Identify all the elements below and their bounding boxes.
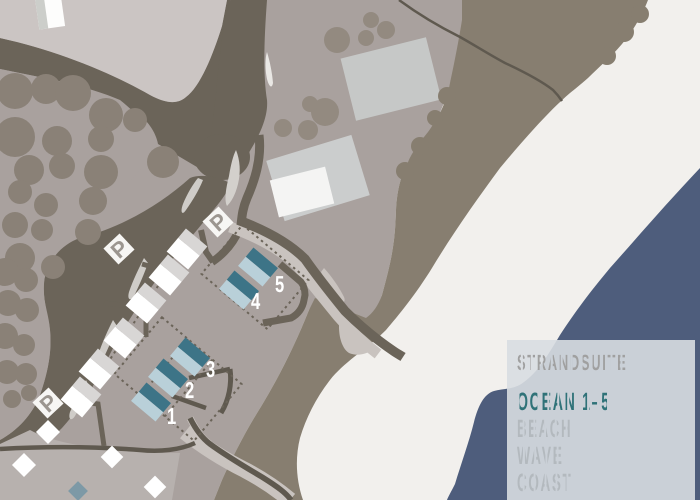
svg-text:BEACH: BEACH bbox=[517, 415, 572, 443]
svg-text:COAST: COAST bbox=[517, 469, 572, 497]
svg-text:1: 1 bbox=[167, 403, 176, 429]
svg-text:STRANDSUITE: STRANDSUITE bbox=[517, 350, 627, 375]
svg-text:WAVE: WAVE bbox=[517, 442, 564, 470]
svg-text:3: 3 bbox=[206, 356, 215, 382]
svg-text:4: 4 bbox=[251, 288, 260, 314]
svg-text:OCEAN 1–5: OCEAN 1–5 bbox=[517, 388, 611, 416]
svg-text:2: 2 bbox=[185, 377, 194, 403]
svg-text:5: 5 bbox=[275, 271, 284, 297]
